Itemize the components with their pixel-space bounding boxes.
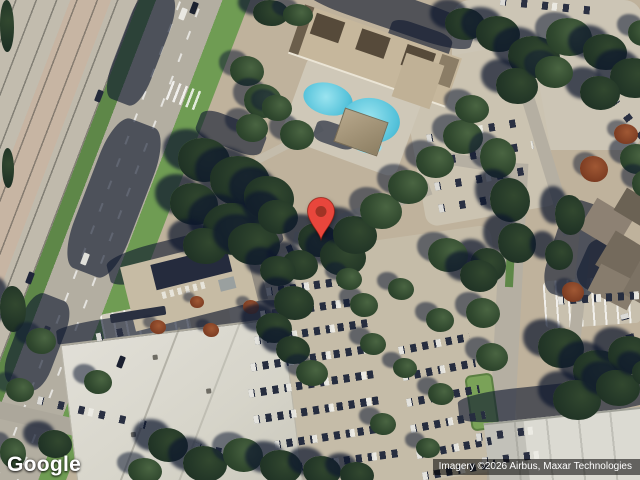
attribution-bar: Imagery ©2026 Airbus, Maxar Technologies (433, 459, 640, 475)
tree (460, 260, 498, 292)
tree (443, 120, 483, 154)
google-logo[interactable]: Google (7, 453, 81, 477)
tree (236, 114, 268, 142)
tree (283, 4, 313, 26)
tree (128, 458, 162, 480)
roof-vent (152, 355, 158, 361)
tree (535, 56, 573, 88)
tree (183, 446, 227, 480)
tree (26, 328, 56, 354)
tree (562, 282, 584, 302)
roof-vent (130, 432, 136, 438)
roof-section (355, 28, 391, 59)
tree (258, 200, 298, 234)
tree (496, 68, 538, 104)
tree (490, 178, 530, 222)
tree (262, 95, 292, 121)
tree (580, 76, 620, 110)
tree (6, 378, 34, 402)
tree (480, 138, 516, 178)
map-canvas[interactable]: Google Imagery ©2026 Airbus, Maxar Techn… (0, 0, 640, 480)
tree (426, 308, 454, 332)
tree (183, 228, 227, 264)
tree (2, 148, 14, 188)
location-pin-icon[interactable] (305, 196, 337, 242)
tree (388, 170, 428, 204)
tree (190, 296, 204, 308)
roof-skylight (218, 276, 236, 292)
tree (84, 370, 112, 394)
tree (555, 195, 585, 235)
tree (388, 278, 414, 300)
tree (0, 286, 26, 332)
roof-section (310, 13, 346, 44)
tree (296, 360, 328, 386)
tree (553, 380, 601, 420)
tree (148, 428, 188, 462)
tree (614, 124, 638, 144)
tree (280, 120, 314, 150)
tree (336, 268, 362, 290)
tree (203, 323, 219, 337)
tree (0, 0, 14, 52)
tree (545, 240, 573, 270)
tree (620, 144, 640, 174)
tree (223, 438, 263, 472)
pin-glyph (305, 196, 337, 242)
tree (260, 450, 302, 480)
tree (360, 333, 386, 355)
tree (350, 293, 378, 317)
tree (370, 413, 396, 435)
tree (243, 300, 259, 314)
tree (466, 298, 500, 328)
tree (416, 438, 440, 458)
tree (150, 320, 166, 334)
tree (230, 56, 264, 86)
tree (428, 383, 454, 405)
tree (393, 358, 417, 378)
tree (260, 256, 296, 286)
tree (416, 146, 454, 178)
tree (455, 95, 489, 123)
tree (580, 156, 608, 182)
attribution-text: Imagery ©2026 Airbus, Maxar Technologies (439, 461, 632, 472)
tree (476, 343, 508, 371)
